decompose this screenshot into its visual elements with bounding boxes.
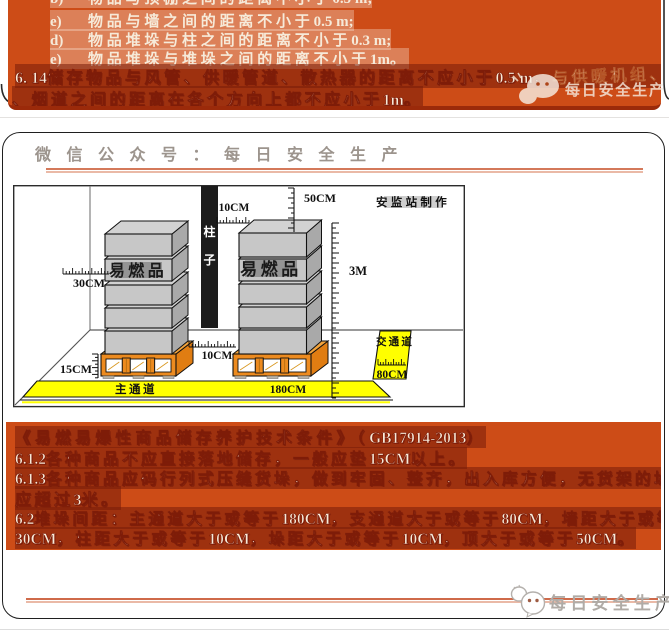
svg-text:安监站制作: 安监站制作 (376, 195, 450, 209)
svg-text:每日安全生产: 每日安全生产 (549, 593, 669, 613)
svg-text:每日安全生产: 每日安全生产 (565, 81, 666, 99)
svg-text:交通道: 交通道 (376, 335, 414, 348)
svg-text:10CM: 10CM (219, 202, 250, 214)
svg-text:3M: 3M (349, 264, 367, 278)
svg-text:80CM: 80CM (377, 369, 408, 381)
svg-text:柱: 柱 (203, 224, 215, 239)
svg-text:180CM: 180CM (270, 384, 307, 396)
svg-text:10CM: 10CM (202, 350, 233, 362)
svg-text:子: 子 (203, 253, 215, 267)
svg-text:易燃品: 易燃品 (240, 259, 302, 279)
svg-text:30CM: 30CM (73, 276, 105, 290)
svg-text:易燃品: 易燃品 (109, 261, 167, 280)
svg-text:15CM: 15CM (60, 362, 92, 376)
svg-text:主通道: 主通道 (115, 382, 157, 396)
svg-text:50CM: 50CM (304, 191, 336, 205)
